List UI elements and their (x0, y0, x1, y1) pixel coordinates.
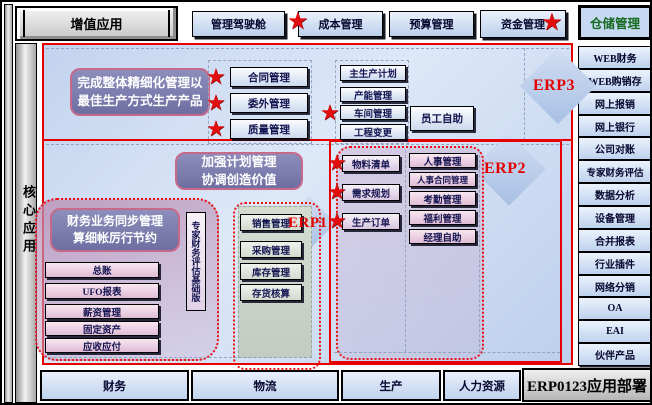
rail-item-online-reimbursement: 网上报销 (578, 92, 652, 115)
top-item-cost: 成本管理 (298, 11, 383, 37)
rail-item-industry-plugins: 行业插件 (578, 252, 652, 275)
rail-item-label: 数据分析 (595, 187, 635, 202)
star-icon (327, 152, 347, 174)
rail-item-label: 设备管理 (595, 210, 635, 225)
module-stock-accounting: 存货核算 (240, 284, 302, 301)
erp1-callout: 财务业务同步管理 算细帐厉行节约 (50, 208, 180, 252)
star-icon (206, 118, 226, 140)
module-production-order: 生产订单 (342, 213, 400, 230)
bottom-item-logistics: 物流 (191, 370, 339, 401)
star-icon (327, 181, 347, 203)
bottom-item-finance: 财务 (40, 370, 189, 401)
right-rail: WEB财务 WEB购销存 网上报销 网上银行 公司对账 专家财务评估 数据分析 … (578, 46, 652, 366)
top-item-budget: 预算管理 (389, 11, 474, 37)
module-label: 产能管理 (354, 88, 392, 102)
callout-line: 最佳生产方式生产产品 (77, 92, 202, 110)
module-hr-mgmt: 人事管理 (409, 153, 476, 168)
bottom-item-label: 物流 (254, 378, 277, 394)
module-master-production-plan: 主生产计划 (340, 65, 406, 81)
divider-dashed (44, 357, 312, 358)
module-label: 福利管理 (423, 211, 461, 225)
rail-item-label: 行业插件 (595, 256, 635, 271)
bottom-item-hr: 人力资源 (443, 370, 521, 401)
bottom-item-label: 财务 (103, 378, 126, 394)
divider-dashed (524, 48, 525, 140)
bottom-item-label: 生产 (380, 378, 403, 394)
erp-architecture-diagram: 核心应用 增值应用 管理驾驶舱 成本管理 预算管理 资金管理 仓储管理 ERP3… (0, 0, 652, 405)
rail-item-account-reconciliation: 公司对账 (578, 137, 652, 160)
rail-item-label: 网上银行 (595, 119, 635, 134)
callout-line: 算细帐厉行节约 (73, 230, 157, 247)
rail-item-web-finance: WEB财务 (578, 46, 652, 69)
top-item-warehouse: 仓储管理 (578, 5, 652, 40)
rail-item-label: EAI (606, 326, 624, 337)
module-workshop-mgmt: 车间管理 (340, 105, 406, 120)
top-item-label: 管理驾驶舱 (211, 16, 266, 32)
rail-item-label: 公司对账 (595, 141, 635, 156)
callout-line: 协调创造价值 (201, 171, 276, 189)
module-label: 合同管理 (248, 70, 290, 85)
module-label: 库存管理 (252, 265, 290, 279)
module-benefits-mgmt: 福利管理 (409, 210, 476, 225)
module-manager-self-service: 经理自助 (409, 229, 476, 244)
module-label: 人事管理 (423, 154, 461, 168)
top-item-cockpit: 管理驾驶舱 (192, 11, 285, 37)
value-add-tab: 增值应用 (15, 6, 178, 41)
bottom-item-production: 生产 (341, 370, 441, 401)
module-label: 工程变更 (354, 125, 392, 139)
top-item-label: 仓储管理 (590, 13, 640, 32)
module-label: 人事合同管理 (417, 174, 468, 186)
rail-item-label: OA (608, 303, 623, 314)
rail-item-label: 合并报表 (595, 233, 635, 248)
deploy-label: ERP0123应用部署 (527, 375, 647, 396)
module-label: 物料清单 (352, 157, 390, 171)
module-label: 固定资产 (83, 322, 121, 336)
module-inventory-mgmt: 库存管理 (240, 263, 302, 280)
callout-line: 财务业务同步管理 (67, 213, 163, 230)
module-fixed-assets: 固定资产 (45, 321, 159, 336)
star-icon (541, 11, 563, 35)
deploy-banner: ERP0123应用部署 (522, 368, 652, 402)
module-label: 委外管理 (248, 96, 290, 111)
divider-dashed (405, 150, 406, 352)
callout-line: 加强计划管理 (201, 153, 276, 171)
rail-item-network-distribution: 网络分销 (578, 275, 652, 298)
module-label: 采购管理 (252, 243, 290, 257)
rail-item-label: 网上报销 (595, 96, 635, 111)
star-icon (320, 102, 340, 124)
value-add-label: 增值应用 (70, 14, 122, 33)
module-quality-mgmt: 质量管理 (230, 119, 308, 139)
module-capacity-mgmt: 产能管理 (340, 87, 406, 102)
rail-item-oa: OA (578, 297, 652, 320)
divider-dashed (479, 150, 480, 352)
module-purchasing-mgmt: 采购管理 (240, 241, 302, 258)
module-engineering-change: 工程变更 (340, 124, 406, 140)
erp3-callout: 完成整体精细化管理以 最佳生产方式生产产品 (70, 68, 210, 116)
module-hr-contract-mgmt: 人事合同管理 (409, 172, 476, 187)
module-label: 考勤管理 (423, 192, 461, 206)
module-label: 存货核算 (252, 286, 290, 300)
rail-item-data-analysis: 数据分析 (578, 183, 652, 206)
core-apps-rail: 核心应用 (15, 43, 37, 403)
bottom-item-label: 人力资源 (459, 378, 505, 394)
top-item-label: 资金管理 (501, 16, 545, 32)
module-label: 主生产计划 (349, 66, 397, 80)
rail-item-equipment-mgmt: 设备管理 (578, 206, 652, 229)
left-frame-strip (4, 4, 13, 403)
module-outsourcing-mgmt: 委外管理 (230, 93, 308, 113)
module-general-ledger: 总账 (45, 262, 159, 278)
module-label: 质量管理 (248, 122, 290, 137)
erp1-label: ERP1 (288, 215, 328, 232)
star-icon (327, 210, 347, 232)
module-expert-finance-eval-basic: 专家财务评估基础版 (186, 212, 206, 311)
module-label: 应收应付 (83, 339, 121, 353)
star-icon (206, 92, 226, 114)
star-icon (206, 66, 226, 88)
rail-item-eai: EAI (578, 320, 652, 343)
module-payroll-mgmt: 薪资管理 (45, 304, 159, 319)
module-attendance-mgmt: 考勤管理 (409, 191, 476, 206)
module-ufo-report: UFO报表 (45, 283, 159, 299)
divider-dashed (334, 352, 560, 353)
module-label: 薪资管理 (83, 305, 121, 319)
module-label: 需求规划 (352, 186, 390, 200)
module-label: 员工自助 (421, 111, 463, 126)
module-label: 专家财务评估基础版 (190, 221, 203, 302)
module-bill-of-materials: 物料清单 (342, 155, 400, 172)
rail-item-label: 专家财务评估 (586, 165, 643, 179)
module-employee-self-service: 员工自助 (410, 106, 474, 131)
top-item-label: 成本管理 (319, 16, 363, 32)
module-label: 生产订单 (352, 215, 390, 229)
module-requirements-planning: 需求规划 (342, 184, 400, 201)
callout-line: 完成整体精细化管理以 (77, 74, 202, 92)
rail-item-partner-products: 伙伴产品 (578, 343, 652, 366)
erp2-label: ERP2 (484, 160, 526, 178)
module-label: 销售管理 (252, 216, 290, 230)
erp2-callout: 加强计划管理 协调创造价值 (175, 152, 303, 190)
module-contract-mgmt: 合同管理 (230, 67, 308, 87)
module-label: 总账 (92, 263, 111, 277)
erp3-label: ERP3 (533, 77, 575, 95)
divider-dashed (46, 48, 569, 49)
rail-item-label: WEB财务 (593, 50, 636, 65)
module-label: UFO报表 (82, 284, 121, 298)
rail-item-online-banking: 网上银行 (578, 115, 652, 138)
star-icon (287, 10, 309, 34)
module-label: 车间管理 (354, 106, 392, 120)
module-ar-ap: 应收应付 (45, 338, 159, 353)
module-label: 经理自助 (423, 230, 461, 244)
rail-item-consolidated-reports: 合并报表 (578, 229, 652, 252)
top-item-label: 预算管理 (410, 16, 454, 32)
rail-item-label: 网络分销 (595, 279, 635, 294)
rail-item-label: 伙伴产品 (595, 347, 635, 362)
rail-item-expert-finance-eval: 专家财务评估 (578, 160, 652, 183)
